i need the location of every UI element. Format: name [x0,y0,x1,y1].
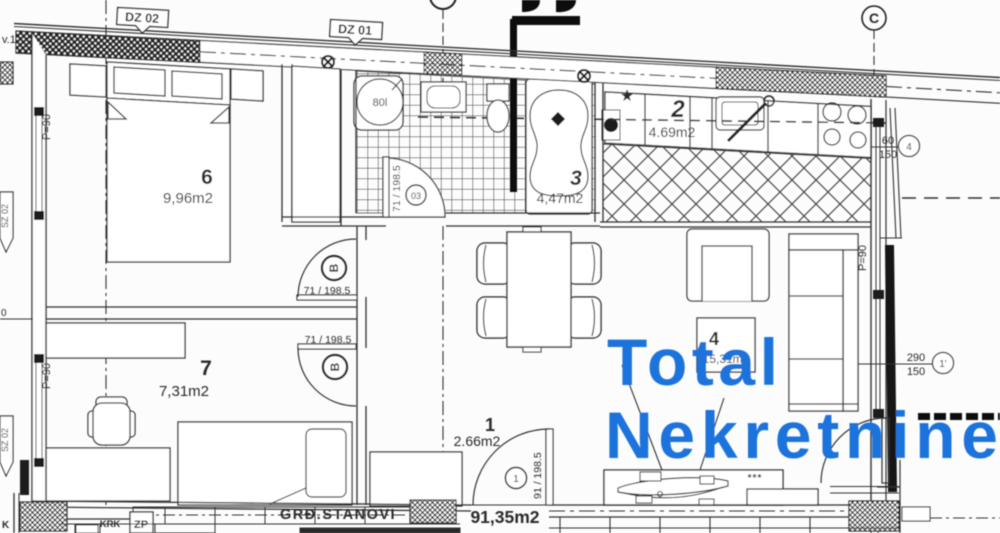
svg-text:DZ 01: DZ 01 [338,22,373,38]
svg-text:150: 150 [879,149,897,161]
svg-text:v.1: v.1 [2,34,16,46]
svg-text:7: 7 [200,357,212,380]
svg-text:K: K [2,520,10,531]
svg-text:C: C [869,10,879,26]
svg-text:SZ 02: SZ 02 [0,204,10,228]
svg-text:Nekretnine: Nekretnine [605,398,998,472]
svg-text:B: B [328,362,342,371]
svg-text:2.66m2: 2.66m2 [454,433,501,449]
svg-text:0: 0 [1,308,7,319]
svg-text:B: B [327,263,341,272]
svg-text:P=90: P=90 [41,363,53,389]
svg-text:2: 2 [670,96,685,123]
svg-text:71 / 198.5: 71 / 198.5 [391,165,403,212]
svg-text:4.69m2: 4.69m2 [649,124,696,140]
svg-text:P=90: P=90 [857,245,869,271]
svg-text:P=90: P=90 [41,114,53,140]
svg-text:1: 1 [513,474,519,485]
svg-text:DZ 02: DZ 02 [125,10,160,26]
svg-text:60: 60 [882,135,894,147]
svg-text:ZP: ZP [134,519,148,531]
svg-text:1': 1' [939,359,947,370]
svg-text:9,96m2: 9,96m2 [163,190,213,207]
svg-text:91,35m2: 91,35m2 [470,507,539,527]
svg-text:7,31m2: 7,31m2 [159,383,209,400]
svg-text:4,47m2: 4,47m2 [537,190,584,206]
svg-text:4: 4 [906,142,912,153]
svg-text:★: ★ [620,88,634,105]
svg-text:GRĐ.STANOVI: GRĐ.STANOVI [280,507,396,523]
svg-text:71 / 198.5: 71 / 198.5 [305,334,352,346]
svg-text:***: *** [748,473,763,484]
svg-text:6: 6 [201,166,213,189]
svg-text:3: 3 [570,167,582,190]
svg-text:03: 03 [411,191,421,201]
svg-text:SZ 02: SZ 02 [0,428,10,452]
svg-text:Total: Total [607,325,778,399]
svg-text:71 / 198.5: 71 / 198.5 [304,285,351,297]
svg-text:1: 1 [485,415,495,435]
svg-text:80l: 80l [373,97,388,109]
svg-text:150: 150 [907,366,925,378]
svg-text:91 / 198.5: 91 / 198.5 [532,452,544,499]
svg-text:290: 290 [907,352,925,364]
